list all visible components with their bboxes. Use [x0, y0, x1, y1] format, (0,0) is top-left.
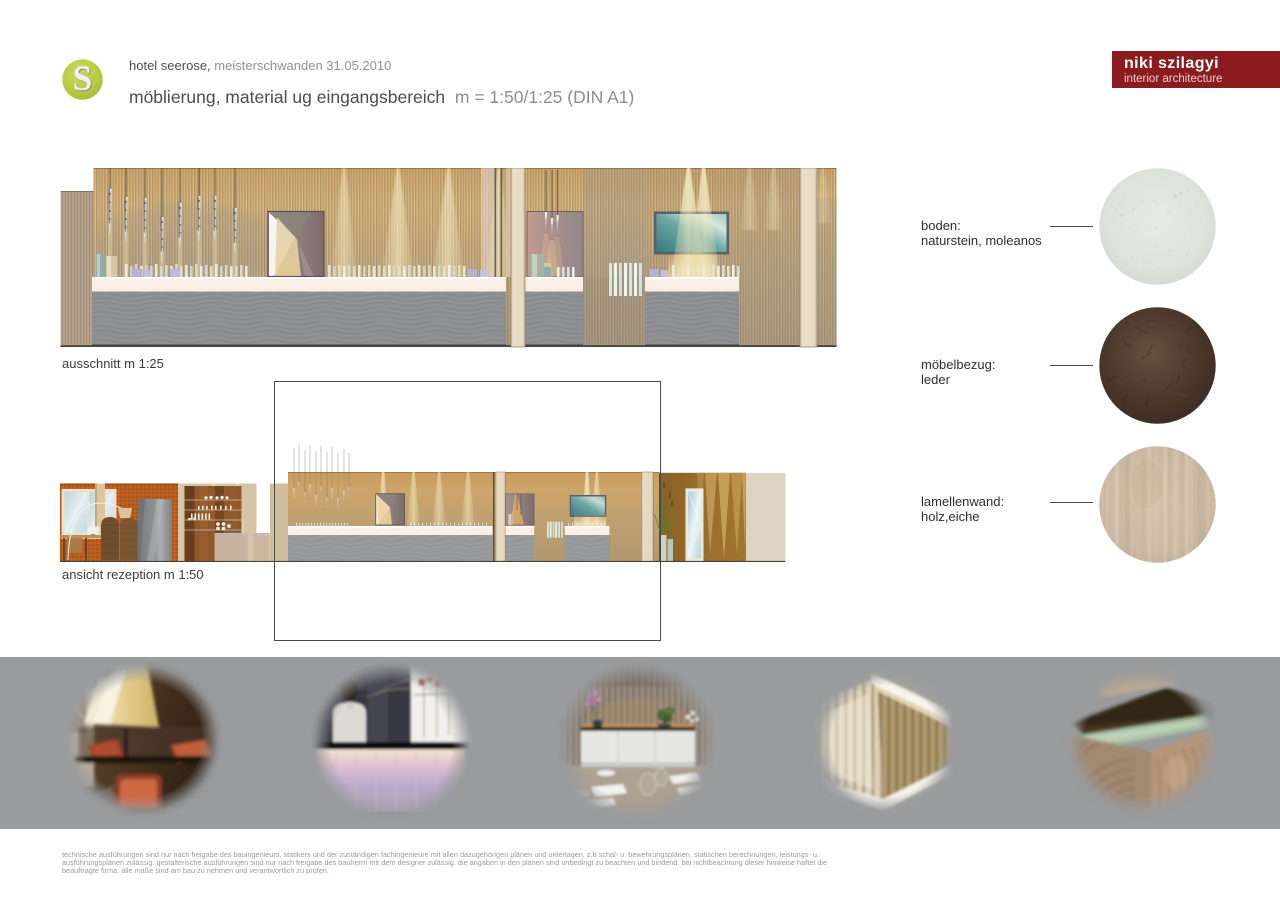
svg-text:hotel: hotel [78, 66, 89, 71]
